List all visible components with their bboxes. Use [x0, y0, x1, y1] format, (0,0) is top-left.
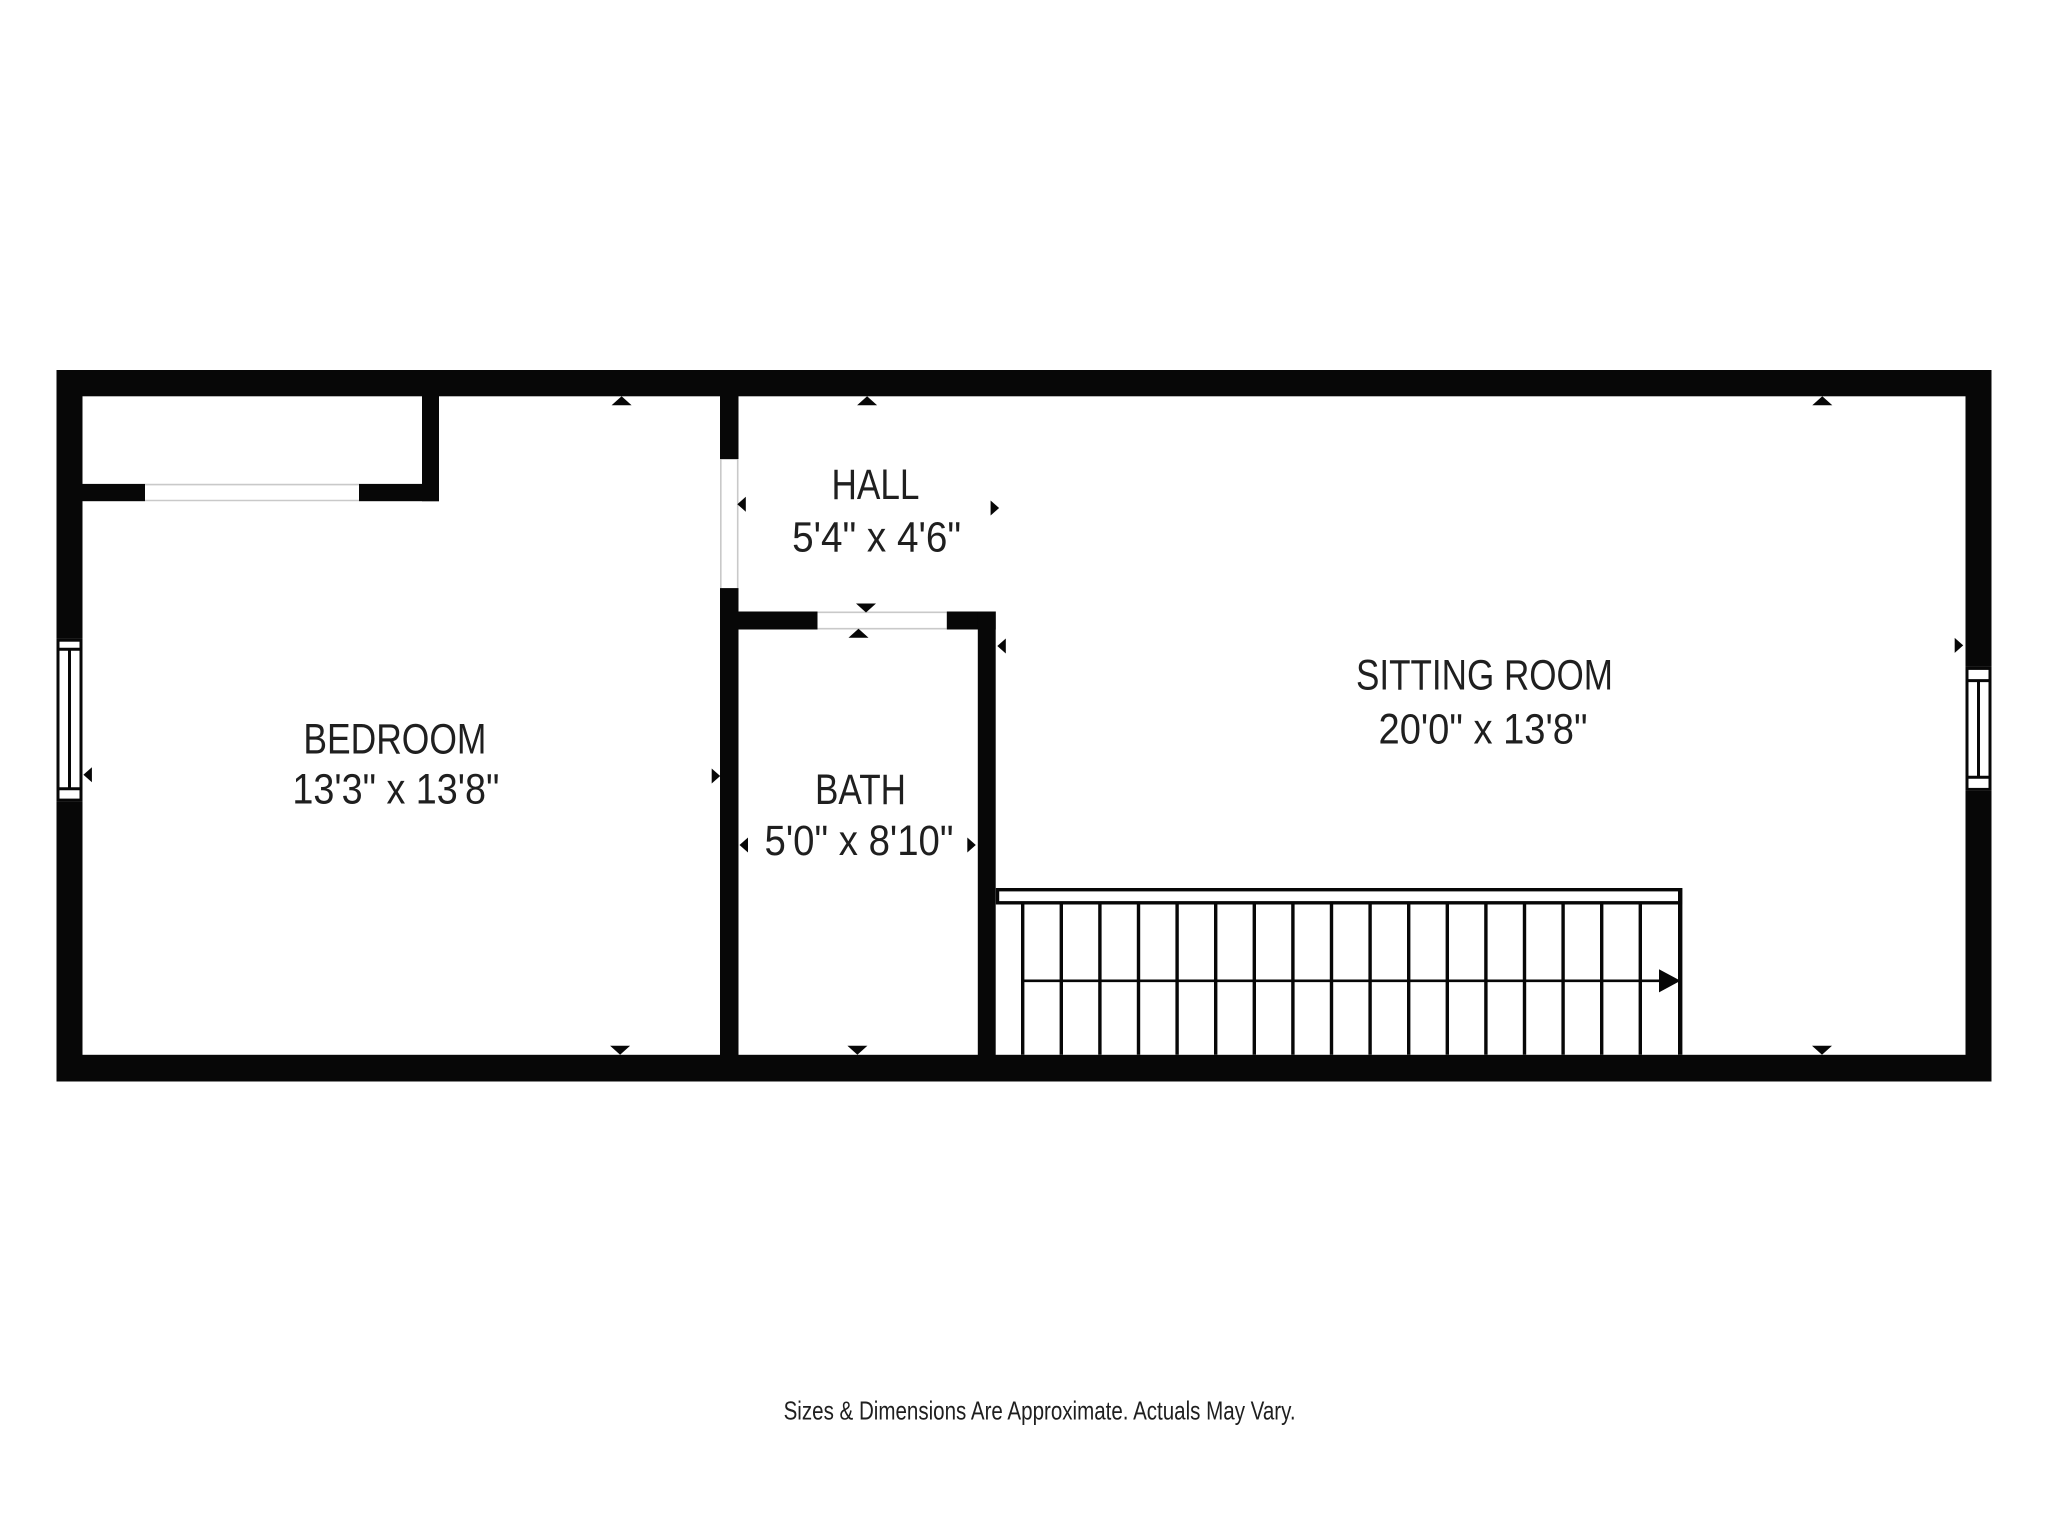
- svg-text:HALL: HALL: [832, 462, 920, 509]
- svg-text:5'0" x 8'10": 5'0" x 8'10": [765, 818, 954, 865]
- svg-text:5'4" x 4'6": 5'4" x 4'6": [792, 514, 961, 561]
- svg-text:BEDROOM: BEDROOM: [303, 717, 486, 764]
- svg-text:20'0" x 13'8": 20'0" x 13'8": [1379, 706, 1588, 753]
- svg-text:SITTING ROOM: SITTING ROOM: [1356, 653, 1613, 700]
- svg-text:BATH: BATH: [815, 767, 906, 814]
- svg-text:13'3" x 13'8": 13'3" x 13'8": [292, 767, 499, 814]
- svg-text:Sizes & Dimensions Are Approxi: Sizes & Dimensions Are Approximate. Actu…: [784, 1395, 1296, 1425]
